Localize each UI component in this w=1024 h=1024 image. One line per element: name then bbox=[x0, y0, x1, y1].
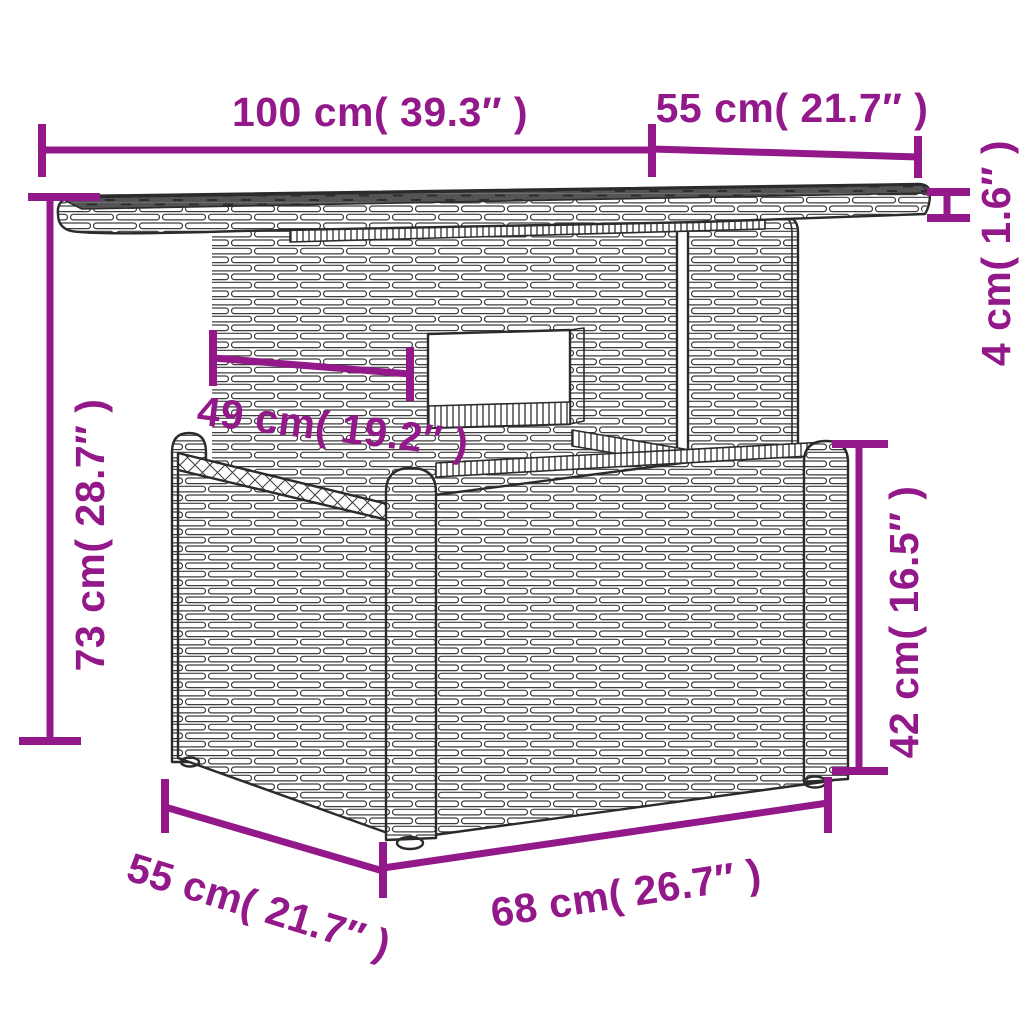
base-left-face bbox=[178, 470, 396, 836]
base-front-left-post bbox=[386, 468, 436, 840]
dimension-diagram: 100 cm( 39.3″ ) 55 cm( 21.7″ ) 4 cm( 1.6… bbox=[0, 0, 1024, 1024]
pedestal-side-face bbox=[688, 216, 798, 462]
base-front-face bbox=[396, 442, 845, 839]
label-top-depth: 55 cm( 21.7″ ) bbox=[656, 85, 929, 131]
label-top-width: 100 cm( 39.3″ ) bbox=[232, 89, 528, 135]
dim-line-top-depth bbox=[652, 136, 918, 178]
base-front-right-post bbox=[804, 441, 848, 782]
label-base-height: 42 cm( 16.5″ ) bbox=[881, 486, 927, 759]
dim-line-top-thickness bbox=[927, 192, 970, 218]
rattan-table-drawing: 100 cm( 39.3″ ) 55 cm( 21.7″ ) 4 cm( 1.6… bbox=[0, 0, 1024, 1024]
label-base-width: 68 cm( 26.7″ ) bbox=[488, 850, 765, 936]
table-illustration bbox=[58, 184, 930, 849]
label-total-height: 73 cm( 28.7″ ) bbox=[67, 399, 113, 672]
label-top-thickness: 4 cm( 1.6″ ) bbox=[973, 140, 1019, 366]
tabletop bbox=[58, 184, 930, 233]
